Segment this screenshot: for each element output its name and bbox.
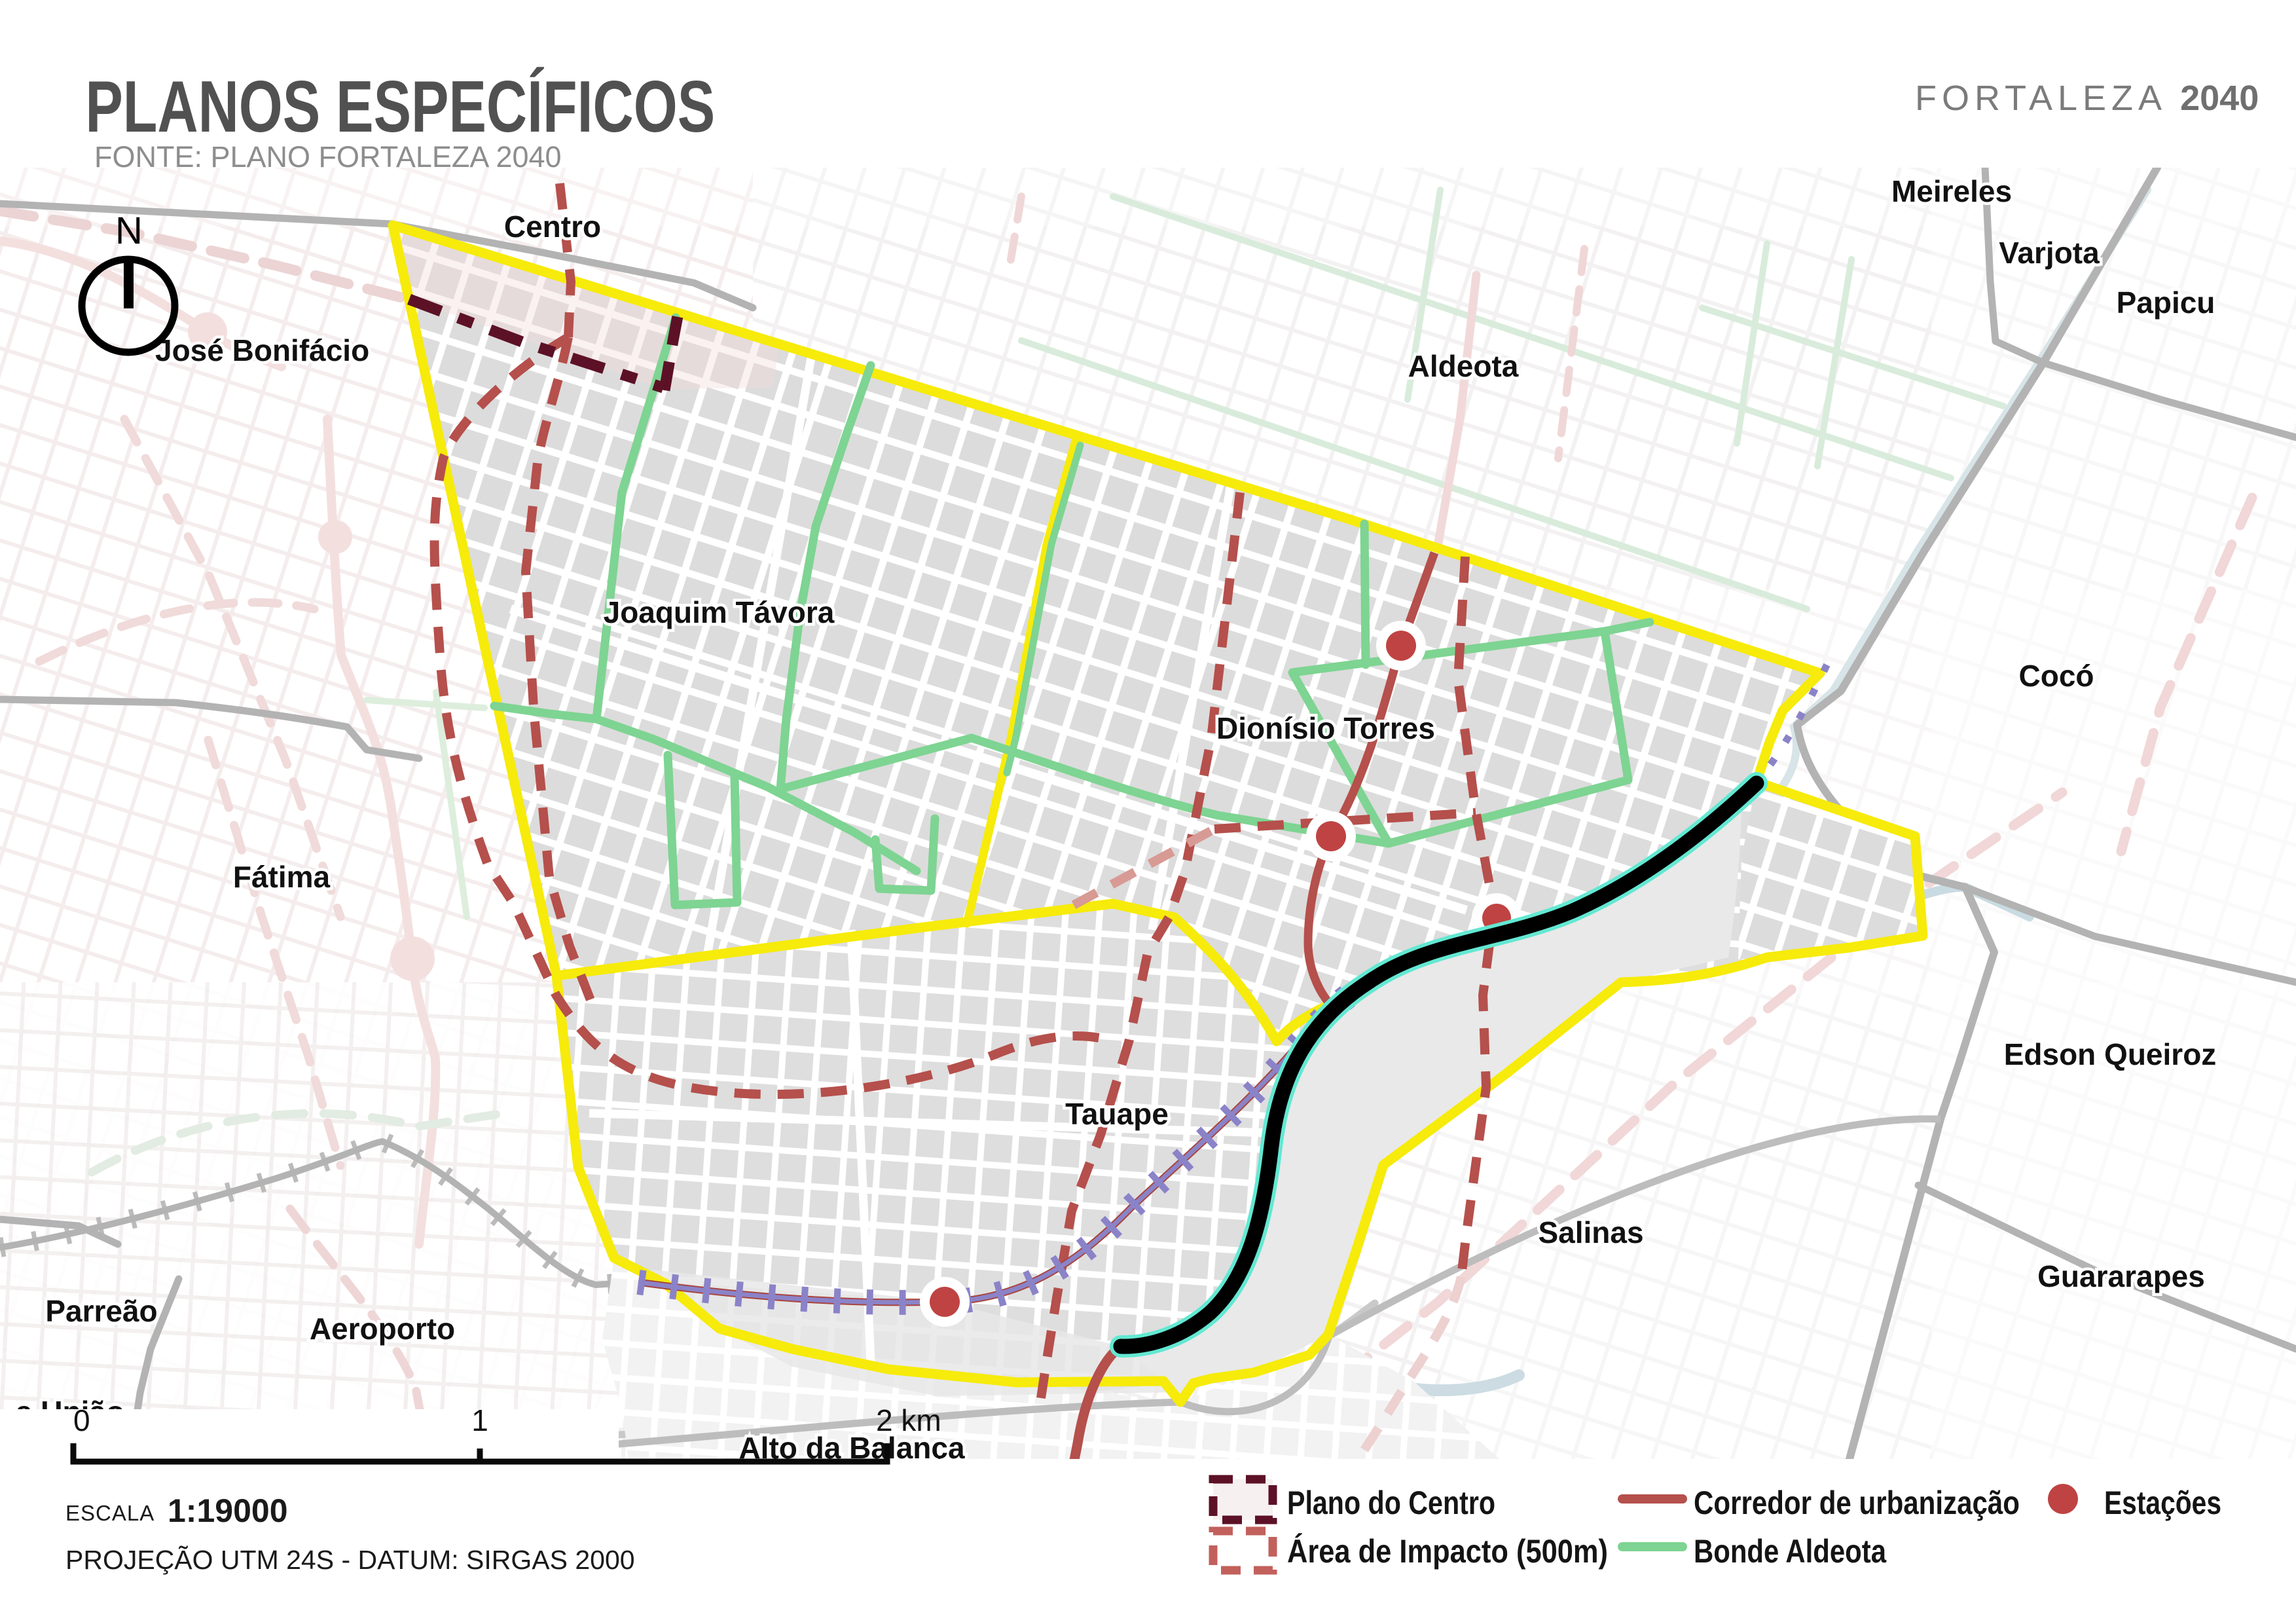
- svg-text:1: 1: [471, 1403, 488, 1437]
- svg-text:Meireles: Meireles: [1891, 174, 2012, 208]
- svg-text:N: N: [115, 210, 143, 252]
- svg-text:Joaquim Távora: Joaquim Távora: [604, 595, 835, 629]
- svg-text:PROJEÇÃO UTM 24S - DATUM: SIRG: PROJEÇÃO UTM 24S - DATUM: SIRGAS 2000: [65, 1545, 635, 1575]
- svg-text:Aldeota: Aldeota: [1408, 349, 1519, 383]
- svg-text:José Bonifácio: José Bonifácio: [155, 333, 369, 367]
- svg-text:Aeroporto: Aeroporto: [310, 1312, 455, 1346]
- svg-text:Parreão: Parreão: [45, 1294, 157, 1328]
- svg-text:Dionísio Torres: Dionísio Torres: [1216, 711, 1435, 745]
- svg-text:Corredor de urbanização: Corredor de urbanização: [1694, 1485, 2020, 1521]
- svg-text:1:19000: 1:19000: [168, 1492, 288, 1529]
- svg-text:Cocó: Cocó: [2019, 659, 2094, 693]
- svg-text:Plano do Centro: Plano do Centro: [1287, 1485, 1495, 1521]
- svg-text:ESCALA: ESCALA: [65, 1501, 155, 1525]
- svg-text:Bonde Aldeota: Bonde Aldeota: [1694, 1533, 1887, 1570]
- svg-text:Fátima: Fátima: [233, 860, 331, 894]
- svg-text:FONTE: PLANO FORTALEZA 2040: FONTE: PLANO FORTALEZA 2040: [94, 140, 562, 174]
- svg-text:Centro: Centro: [504, 210, 601, 244]
- svg-text:Guararapes: Guararapes: [2037, 1259, 2205, 1293]
- svg-text:Área de Impacto (500m): Área de Impacto (500m): [1287, 1533, 1608, 1570]
- svg-text:0: 0: [73, 1403, 90, 1437]
- svg-text:Varjota: Varjota: [1999, 236, 2100, 270]
- svg-text:Estações: Estações: [2104, 1485, 2221, 1521]
- svg-text:2 km: 2 km: [876, 1403, 941, 1437]
- svg-text:Salinas: Salinas: [1538, 1215, 1643, 1249]
- svg-text:Edson Queiroz: Edson Queiroz: [2004, 1037, 2217, 1071]
- svg-text:PLANOS ESPECÍFICOS: PLANOS ESPECÍFICOS: [85, 67, 715, 148]
- svg-text:Tauape: Tauape: [1065, 1097, 1169, 1131]
- svg-text:FORTALEZA 2040: FORTALEZA 2040: [1915, 79, 2259, 118]
- svg-text:Papicu: Papicu: [2117, 286, 2215, 320]
